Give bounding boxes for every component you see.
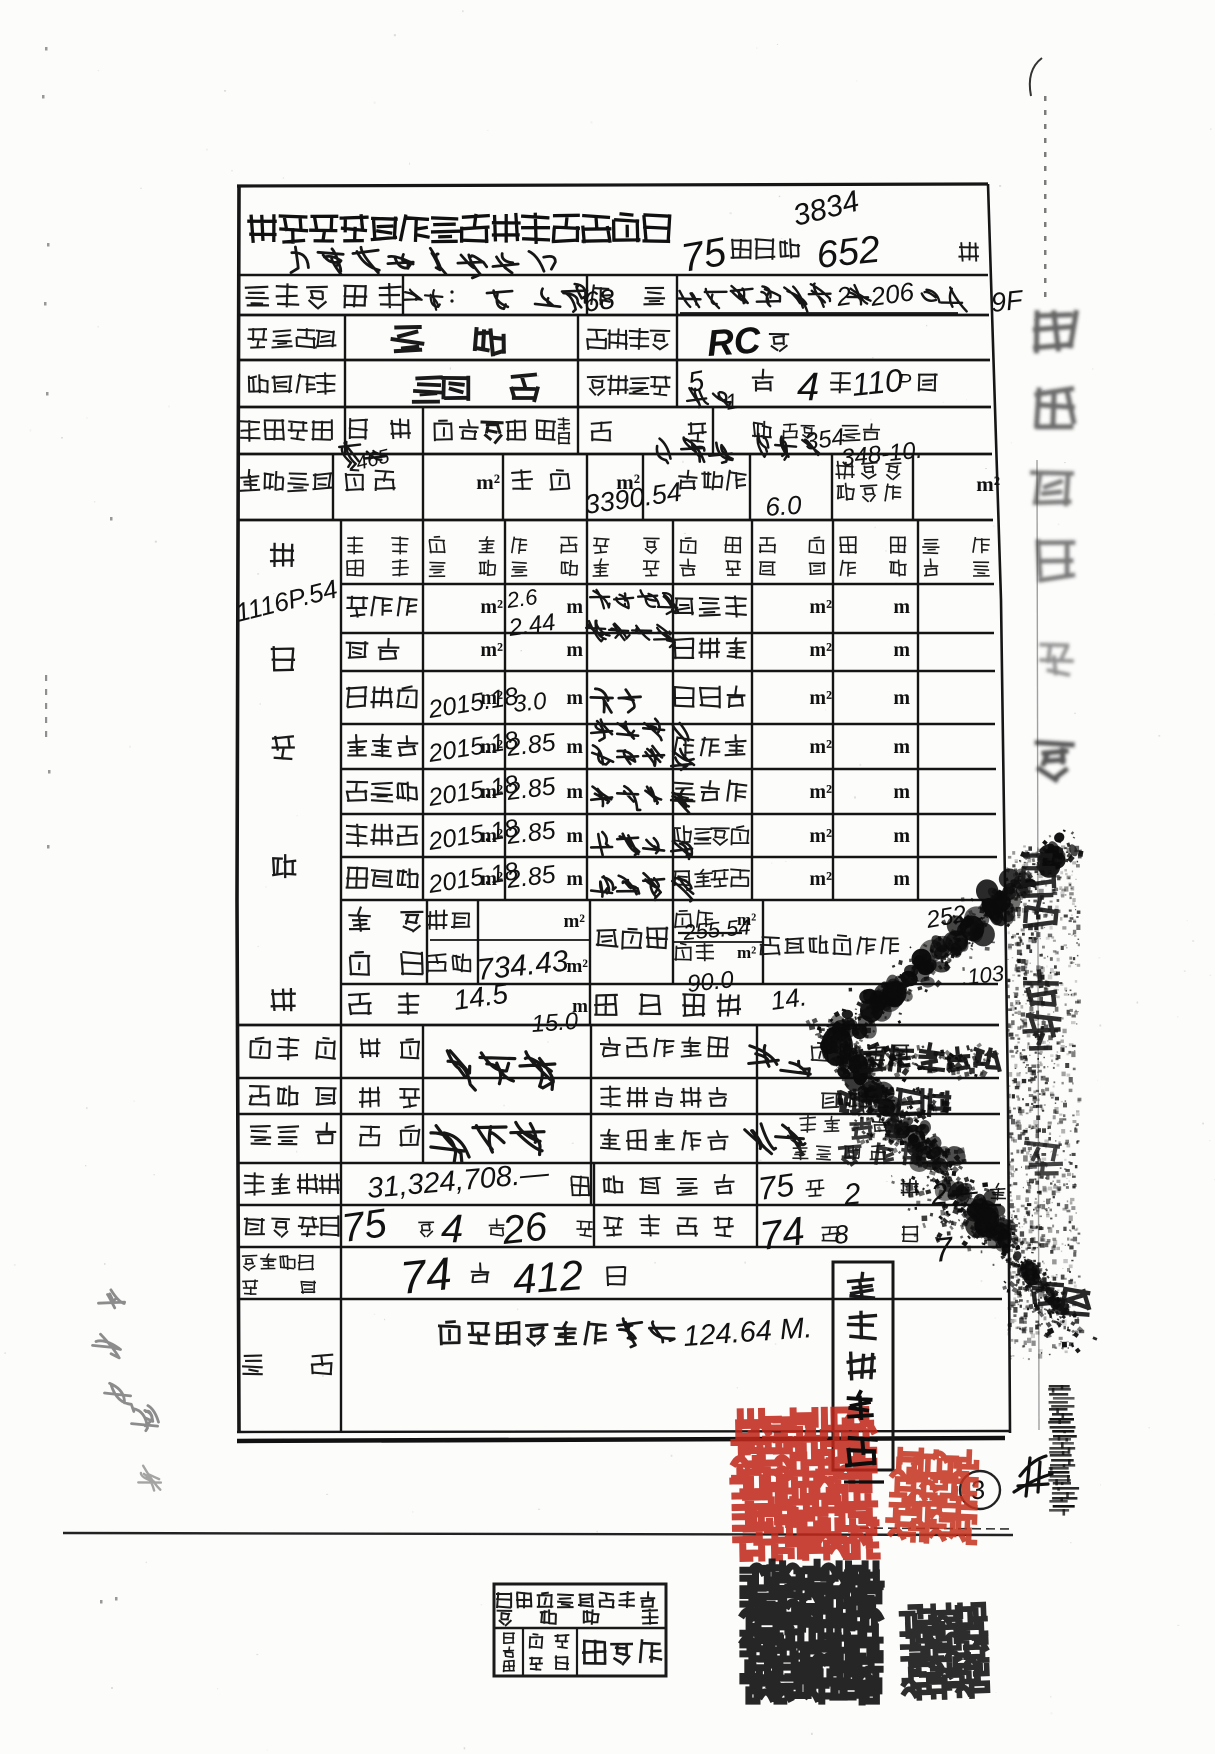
- svg-text:6.0: 6.0: [764, 489, 803, 521]
- svg-text:m: m: [566, 639, 583, 661]
- svg-text:2.6: 2.6: [504, 584, 540, 613]
- svg-text:m: m: [893, 825, 910, 847]
- svg-text:m²: m²: [809, 736, 832, 758]
- svg-text:3.0: 3.0: [512, 688, 549, 718]
- svg-text:m²: m²: [809, 825, 832, 847]
- svg-text:m²: m²: [809, 687, 832, 709]
- svg-text:m: m: [893, 781, 910, 803]
- svg-text:m²: m²: [476, 470, 500, 494]
- svg-text:m: m: [566, 687, 583, 709]
- svg-text:75: 75: [339, 1201, 390, 1251]
- svg-text:75: 75: [678, 230, 730, 281]
- svg-text:m²: m²: [480, 639, 503, 661]
- svg-text:m²: m²: [563, 911, 585, 932]
- svg-text:110: 110: [850, 362, 905, 403]
- svg-text:m²: m²: [976, 472, 1000, 496]
- svg-text:m: m: [566, 781, 583, 803]
- svg-text:m: m: [893, 868, 910, 890]
- svg-text:m²: m²: [737, 943, 756, 962]
- svg-text:74: 74: [757, 1209, 807, 1259]
- svg-text:14.: 14.: [769, 981, 809, 1016]
- svg-text:.103: .103: [960, 961, 1006, 990]
- svg-text:m²: m²: [809, 596, 832, 618]
- svg-text:652: 652: [815, 229, 882, 277]
- svg-text:15.0: 15.0: [531, 1008, 580, 1038]
- svg-text:P: P: [898, 371, 912, 393]
- svg-text:m: m: [566, 868, 583, 890]
- svg-text:74: 74: [398, 1247, 454, 1304]
- svg-text:26: 26: [499, 1204, 550, 1253]
- svg-text:9F: 9F: [989, 285, 1025, 318]
- svg-text:m²: m²: [809, 639, 832, 661]
- svg-text:m²: m²: [480, 596, 503, 618]
- svg-text:m: m: [566, 596, 583, 618]
- svg-text:206: 206: [868, 276, 917, 312]
- svg-text:m: m: [893, 639, 910, 661]
- svg-text:m: m: [893, 596, 910, 618]
- svg-text:m: m: [893, 687, 910, 709]
- svg-text:68: 68: [582, 283, 618, 318]
- svg-text:412: 412: [511, 1251, 584, 1303]
- svg-text:4: 4: [797, 365, 819, 409]
- svg-text:m²: m²: [566, 956, 588, 977]
- svg-text:m²: m²: [809, 868, 832, 890]
- svg-text:75: 75: [756, 1166, 796, 1207]
- svg-text:m²: m²: [809, 781, 832, 803]
- svg-text:m: m: [566, 825, 583, 847]
- svg-text:m: m: [566, 736, 583, 758]
- svg-text:4: 4: [441, 1207, 463, 1251]
- svg-text:m: m: [893, 736, 910, 758]
- svg-text:RC: RC: [706, 319, 763, 364]
- svg-text:90.0: 90.0: [686, 966, 736, 998]
